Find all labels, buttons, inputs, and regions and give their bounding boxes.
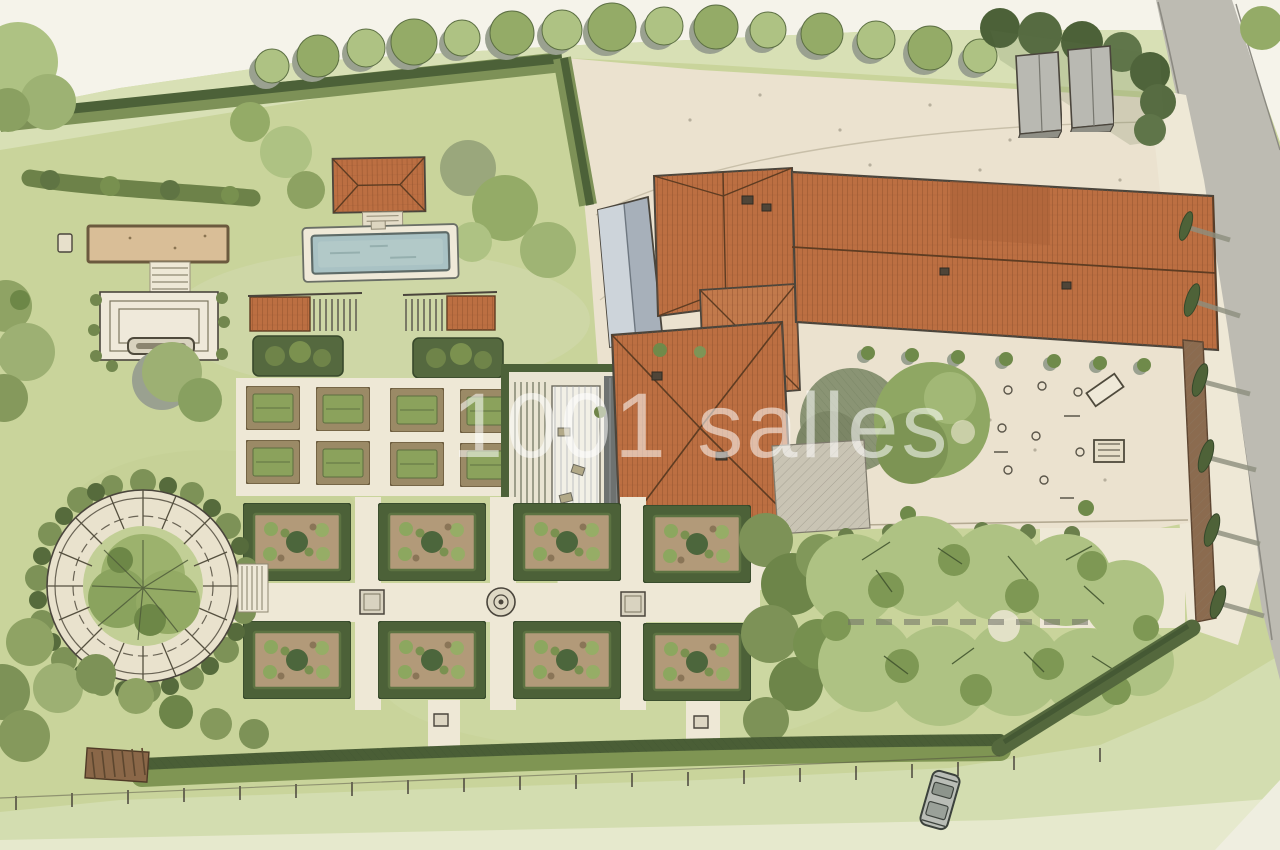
plaza-steps (150, 262, 190, 294)
pergola-hedge-bed (253, 336, 343, 376)
parterre-square (378, 503, 486, 581)
shrub (1078, 500, 1094, 516)
path-ornament-circle (487, 588, 515, 616)
parterre-square (643, 505, 751, 583)
parterre-square (513, 621, 621, 699)
swimming-pool (302, 219, 458, 282)
bench (58, 234, 72, 252)
site-plan-canvas (0, 0, 1280, 850)
parterre-square (243, 621, 351, 699)
potager (236, 378, 514, 496)
barn-roof (792, 172, 1218, 350)
pergola-hedge-bed (413, 338, 503, 378)
circle-steps-east (238, 564, 268, 612)
table (1094, 440, 1124, 462)
parterre-square (643, 623, 751, 701)
site-plan-illustration: 1001 salles (0, 0, 1280, 850)
parterre-square (378, 621, 486, 699)
parterre-square (513, 503, 621, 581)
paved-patio (772, 440, 870, 534)
garden-shed (1068, 46, 1114, 134)
garden-shed (1016, 52, 1062, 140)
orchard-grove (806, 516, 1185, 726)
